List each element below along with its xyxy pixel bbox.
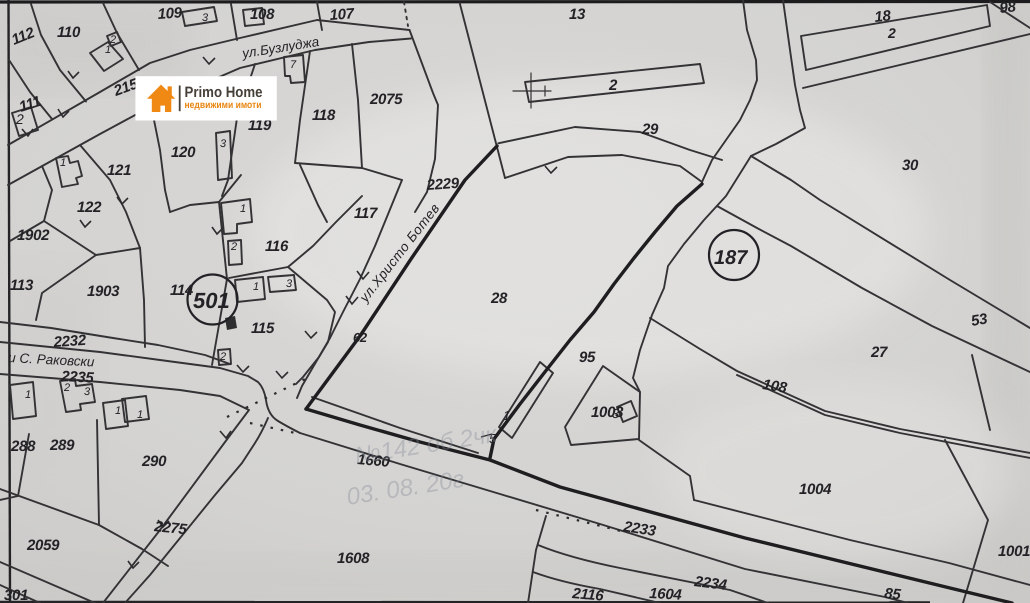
svg-text:2232: 2232 <box>52 332 87 351</box>
svg-text:301: 301 <box>4 587 28 603</box>
svg-text:1: 1 <box>115 405 121 417</box>
svg-text:114: 114 <box>170 282 194 299</box>
svg-text:3: 3 <box>612 406 620 421</box>
svg-text:120: 120 <box>171 144 196 161</box>
svg-text:Primo Home: Primo Home <box>185 84 263 101</box>
svg-text:122: 122 <box>77 199 102 216</box>
svg-text:2: 2 <box>608 77 618 94</box>
svg-text:288: 288 <box>10 438 36 455</box>
svg-text:2059: 2059 <box>26 537 60 554</box>
svg-text:2: 2 <box>887 25 896 41</box>
svg-text:13: 13 <box>569 6 586 23</box>
svg-text:187: 187 <box>714 247 748 269</box>
svg-text:110: 110 <box>57 24 81 41</box>
svg-text:1: 1 <box>503 408 510 423</box>
svg-text:1902: 1902 <box>17 227 50 244</box>
svg-text:3: 3 <box>220 138 227 150</box>
svg-text:1: 1 <box>240 203 246 215</box>
svg-text:107: 107 <box>329 5 355 24</box>
svg-text:2: 2 <box>219 351 226 363</box>
svg-text:501: 501 <box>193 288 230 313</box>
svg-text:30: 30 <box>902 157 919 174</box>
svg-text:1004: 1004 <box>799 481 832 498</box>
svg-text:1: 1 <box>137 409 143 421</box>
svg-text:118: 118 <box>312 107 336 124</box>
svg-text:2229: 2229 <box>425 175 460 194</box>
svg-text:3: 3 <box>84 386 91 398</box>
svg-text:29: 29 <box>641 121 659 138</box>
svg-text:2: 2 <box>63 382 70 394</box>
svg-text:1: 1 <box>253 281 259 293</box>
svg-text:1001: 1001 <box>998 543 1030 560</box>
svg-text:3: 3 <box>286 278 293 290</box>
svg-text:115: 115 <box>251 320 275 337</box>
svg-text:289: 289 <box>49 437 75 454</box>
svg-text:108: 108 <box>250 6 275 23</box>
svg-text:98: 98 <box>999 0 1018 17</box>
svg-text:2: 2 <box>109 34 116 46</box>
svg-text:95: 95 <box>579 349 596 366</box>
svg-text:2: 2 <box>230 241 237 253</box>
svg-text:3: 3 <box>202 12 209 24</box>
svg-text:117: 117 <box>354 205 378 222</box>
svg-text:27: 27 <box>870 344 888 361</box>
svg-text:121: 121 <box>107 162 131 179</box>
svg-text:1608: 1608 <box>337 550 370 567</box>
svg-text:28: 28 <box>490 290 508 307</box>
svg-text:2: 2 <box>15 111 24 127</box>
svg-text:1: 1 <box>25 389 31 401</box>
svg-text:290: 290 <box>141 453 167 470</box>
svg-text:1903: 1903 <box>87 283 120 300</box>
svg-text:113: 113 <box>10 277 34 294</box>
svg-text:116: 116 <box>265 238 289 255</box>
svg-text:18: 18 <box>874 7 893 26</box>
svg-text:85: 85 <box>884 585 902 603</box>
svg-text:1: 1 <box>60 157 66 169</box>
svg-text:1604: 1604 <box>649 585 683 603</box>
svg-text:109: 109 <box>157 4 183 23</box>
svg-text:62: 62 <box>353 330 368 345</box>
svg-text:2275: 2275 <box>153 518 189 538</box>
svg-text:2116: 2116 <box>571 585 605 603</box>
svg-text:7: 7 <box>290 59 297 71</box>
svg-text:2075: 2075 <box>369 91 403 108</box>
svg-text:недвижими имоти: недвижими имоти <box>185 100 262 111</box>
